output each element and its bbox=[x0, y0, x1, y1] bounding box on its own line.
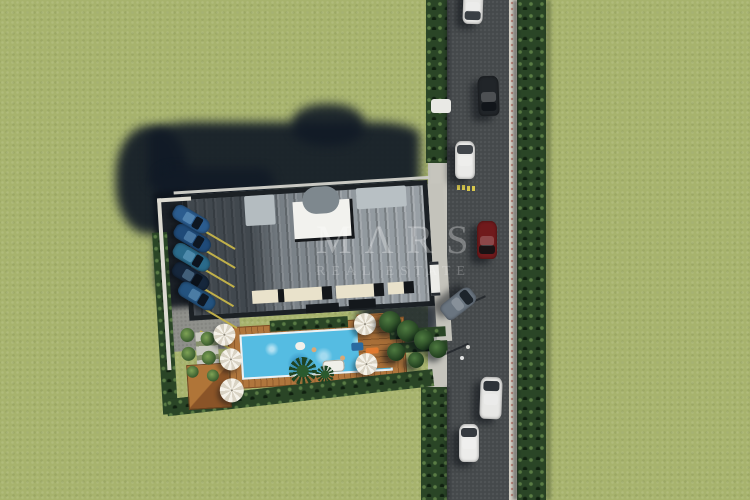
car-white-northbound-2 bbox=[459, 424, 479, 462]
garden-shrub bbox=[181, 347, 196, 362]
terrace bbox=[336, 283, 375, 298]
entrance-tree bbox=[387, 343, 405, 361]
roof-notch bbox=[349, 298, 376, 309]
rooftop-unit-left bbox=[244, 194, 276, 226]
van-white-northbound bbox=[479, 377, 502, 420]
terrace bbox=[252, 289, 279, 304]
watermark-brand: MΛRS bbox=[316, 220, 576, 260]
watermark-tagline: REAL ESTATE bbox=[316, 264, 576, 280]
utility-box-white bbox=[431, 99, 451, 113]
hedge-shadow bbox=[446, 0, 449, 160]
pole-base bbox=[466, 345, 470, 349]
car-white-top-edge bbox=[462, 0, 483, 24]
hedge-road-west-north bbox=[426, 0, 447, 163]
yellow-dash bbox=[472, 186, 475, 191]
car-black-southbound bbox=[477, 76, 499, 117]
yellow-dash bbox=[467, 186, 470, 191]
pool-float-ring bbox=[295, 342, 305, 351]
terrace bbox=[284, 287, 323, 302]
yellow-dash bbox=[457, 185, 460, 190]
terrace bbox=[388, 282, 405, 295]
rooftop-dome bbox=[302, 185, 341, 214]
property-parcel bbox=[143, 168, 467, 426]
pool-float-mat-blue bbox=[351, 342, 363, 351]
watermark: MΛRS REAL ESTATE bbox=[316, 220, 576, 280]
building-shadow-dome-bump bbox=[292, 104, 364, 146]
aerial-site-render: MΛRS REAL ESTATE bbox=[0, 0, 750, 500]
yellow-dash bbox=[462, 185, 465, 190]
entrance-tree bbox=[408, 352, 424, 368]
roof-notch bbox=[306, 303, 339, 314]
rooftop-unit-right bbox=[356, 185, 407, 209]
entrance-tree bbox=[429, 340, 447, 358]
car-white-northbound bbox=[455, 141, 475, 179]
